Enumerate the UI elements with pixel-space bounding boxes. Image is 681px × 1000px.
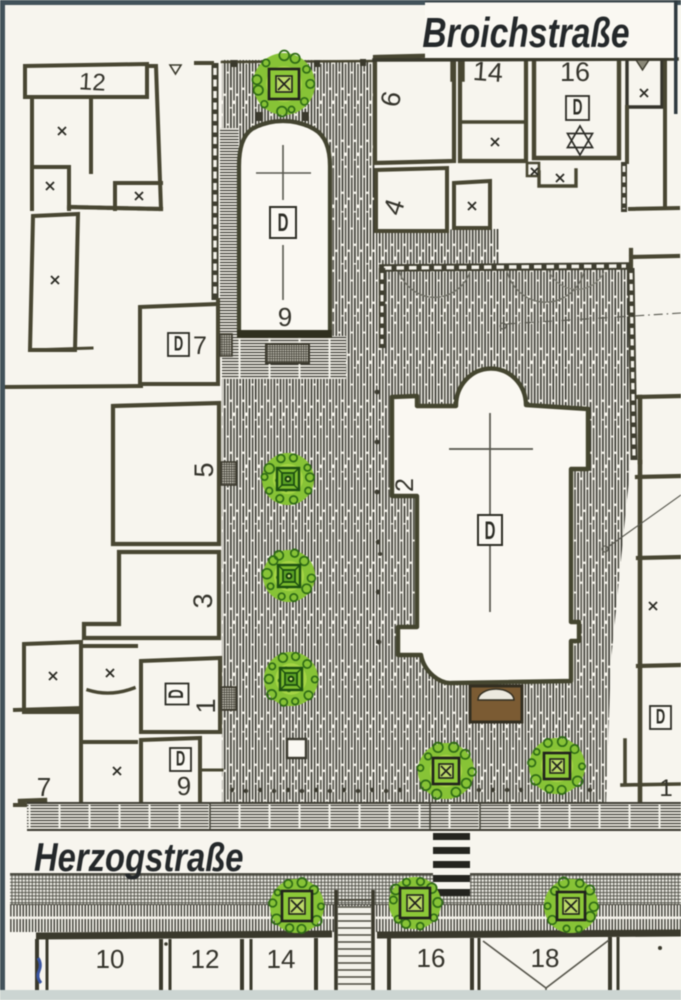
svg-text:5: 5: [189, 462, 219, 477]
svg-text:3: 3: [188, 593, 218, 608]
svg-text:7: 7: [193, 332, 207, 360]
svg-text:16: 16: [417, 943, 446, 973]
svg-text:D: D: [485, 518, 496, 545]
svg-text:12: 12: [78, 68, 106, 96]
svg-text:D: D: [656, 704, 665, 728]
svg-text:9: 9: [177, 771, 191, 801]
svg-text:1: 1: [191, 698, 221, 713]
svg-text:18: 18: [531, 943, 560, 973]
svg-text:7: 7: [37, 772, 51, 802]
svg-text:14: 14: [267, 944, 296, 974]
svg-text:Herzogstraße: Herzogstraße: [34, 835, 244, 880]
svg-text:D: D: [278, 210, 289, 237]
svg-text:D: D: [176, 746, 185, 770]
svg-text:16: 16: [560, 57, 590, 87]
svg-text:2: 2: [391, 478, 419, 492]
svg-text:14: 14: [472, 56, 504, 88]
svg-text:D: D: [573, 94, 583, 119]
svg-text:D: D: [164, 689, 188, 698]
svg-text:10: 10: [96, 944, 125, 974]
svg-text:Broichstraße: Broichstraße: [422, 11, 629, 57]
svg-text:9: 9: [278, 302, 292, 332]
svg-text:1: 1: [659, 775, 672, 802]
svg-text:12: 12: [191, 944, 220, 974]
svg-text:D: D: [174, 331, 183, 355]
